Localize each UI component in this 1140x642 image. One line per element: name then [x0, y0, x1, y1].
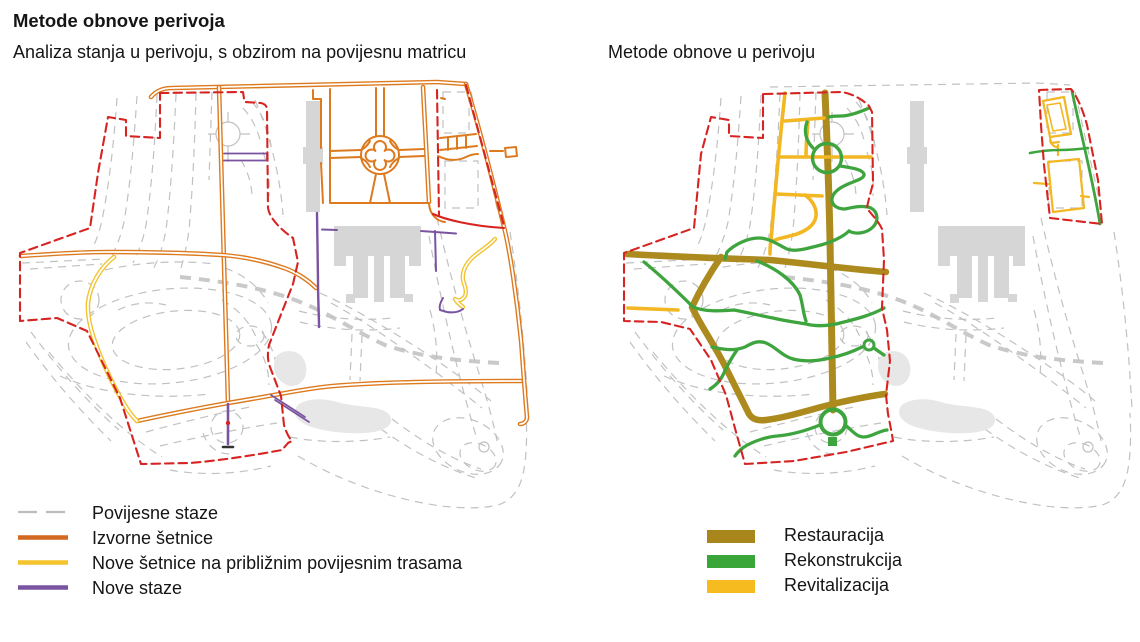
- svg-text:Metode obnove u perivoju: Metode obnove u perivoju: [608, 42, 815, 62]
- svg-text:Rekonstrukcija: Rekonstrukcija: [784, 550, 903, 570]
- svg-text:Revitalizacija: Revitalizacija: [784, 575, 890, 595]
- svg-text:Nove staze: Nove staze: [92, 578, 182, 598]
- svg-text:Restauracija: Restauracija: [784, 525, 885, 545]
- svg-text:Nove šetnice na približnim pov: Nove šetnice na približnim povijesnim tr…: [92, 553, 463, 573]
- svg-text:Analiza stanja u perivoju, s o: Analiza stanja u perivoju, s obzirom na …: [13, 42, 466, 62]
- svg-text:Metode obnove perivoja: Metode obnove perivoja: [13, 10, 225, 31]
- svg-text:Izvorne šetnice: Izvorne šetnice: [92, 528, 213, 548]
- svg-text:Povijesne staze: Povijesne staze: [92, 503, 218, 523]
